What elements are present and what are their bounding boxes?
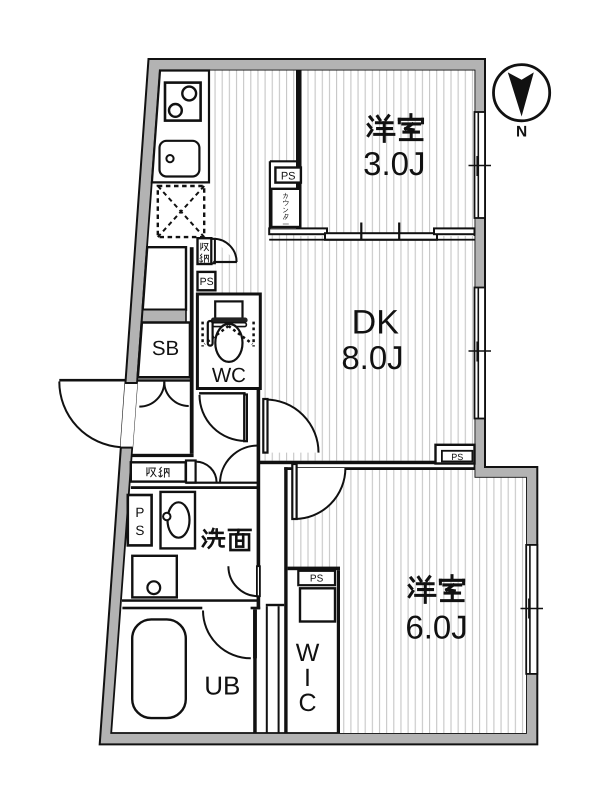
svg-text:PS: PS [281,171,296,183]
svg-text:PS: PS [451,452,463,462]
svg-text:6.0J: 6.0J [405,609,467,646]
svg-text:PS: PS [310,574,324,585]
svg-text:PS: PS [200,276,214,288]
svg-text:I: I [304,664,311,692]
svg-text:SB: SB [152,337,179,360]
svg-text:P: P [135,505,144,520]
svg-text:W: W [296,639,320,667]
svg-text:N: N [516,124,527,141]
svg-text:S: S [135,523,144,538]
svg-text:C: C [298,689,316,717]
svg-text:DK: DK [352,303,400,341]
svg-text:UB: UB [204,671,240,701]
svg-text:WC: WC [212,364,246,387]
svg-text:8.0J: 8.0J [341,339,403,376]
svg-text:3.0J: 3.0J [363,145,425,182]
